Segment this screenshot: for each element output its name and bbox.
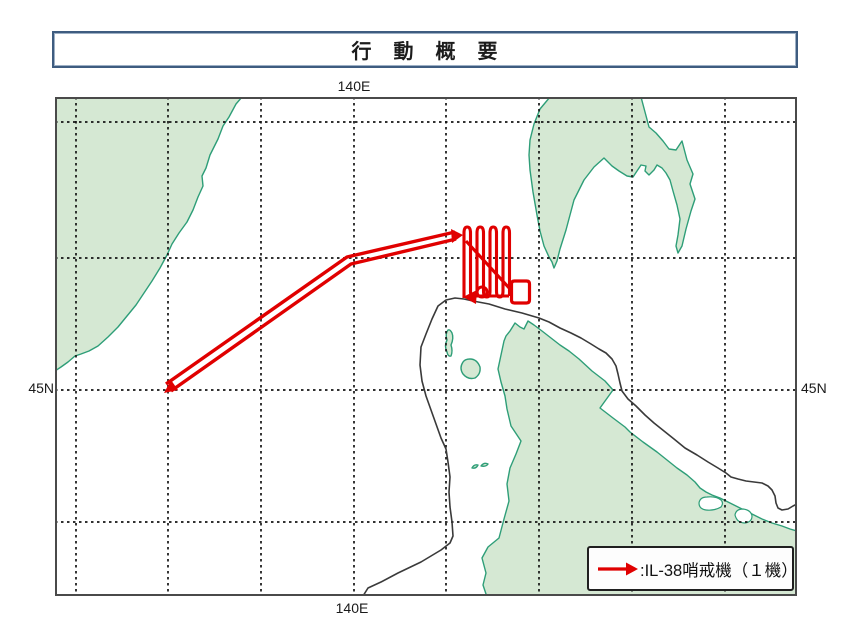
legend-label: :IL-38哨戒機（１機） [640,557,798,581]
island-small-round [461,359,480,379]
flight-track-outbound-leg [166,232,455,384]
latitude-label-left: 45N [20,380,54,396]
islet-tiny-1 [472,465,478,468]
map-canvas [0,0,850,638]
coastal-lagoon-1 [699,497,723,510]
legend-box: :IL-38哨戒機（１機） [587,546,794,591]
activity-summary-page: 行 動 概 要 140E [0,0,850,638]
flight-track-return-leg [171,239,456,391]
track-arrowhead-east [451,229,463,243]
longitude-label-bottom: 140E [329,600,375,616]
island-small-north [446,330,453,356]
coastal-lagoon-2 [735,509,752,523]
islet-tiny-2 [481,463,488,466]
latitude-label-right: 45N [801,380,835,396]
flight-track-holding-box [512,281,530,303]
flight-track-arrow-icon [597,561,639,577]
landmass-mainland-coast [55,97,242,371]
